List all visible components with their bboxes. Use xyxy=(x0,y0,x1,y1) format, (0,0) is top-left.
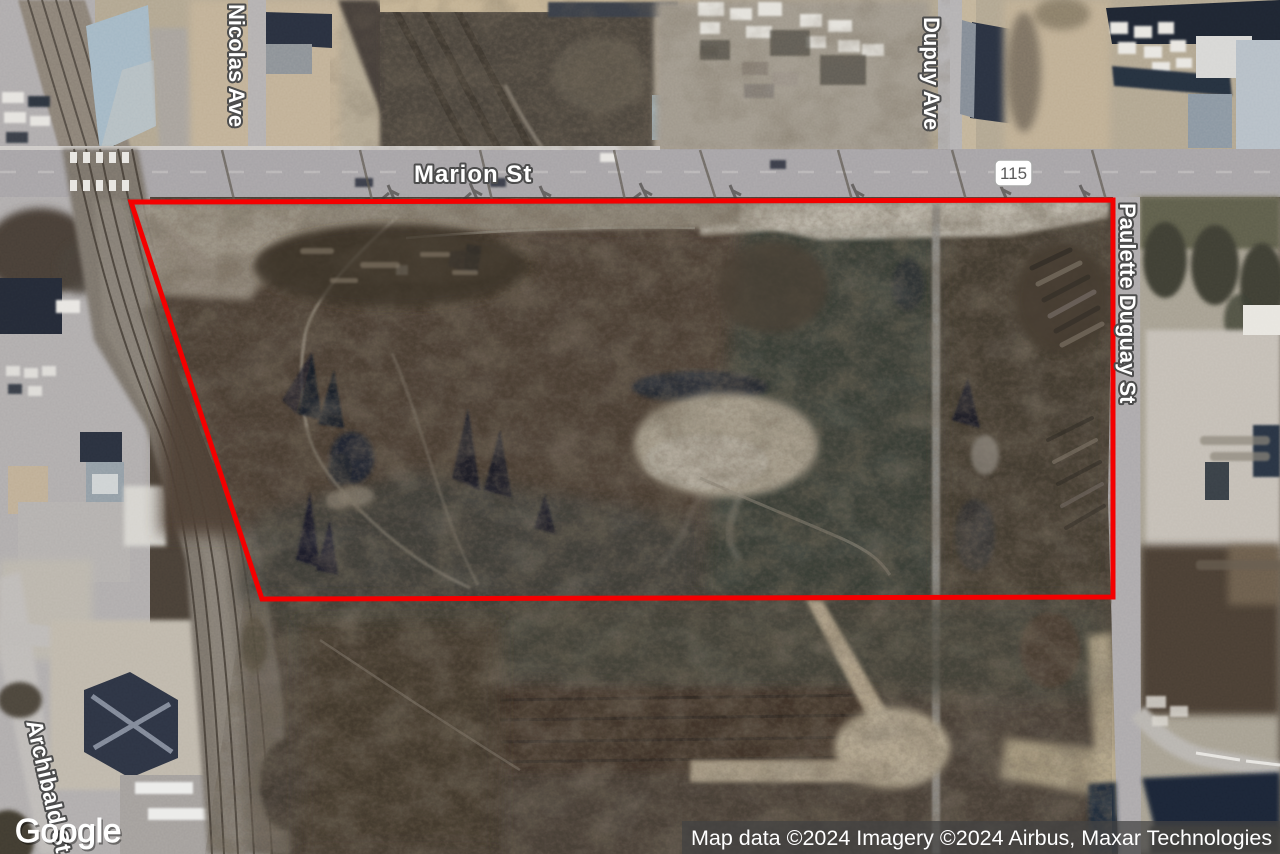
svg-text:Google: Google xyxy=(15,812,121,849)
svg-text:115: 115 xyxy=(1000,164,1027,183)
svg-text:Map data ©2024 Imagery ©2024 A: Map data ©2024 Imagery ©2024 Airbus, Max… xyxy=(691,826,1272,850)
svg-text:Nicolas Ave: Nicolas Ave xyxy=(224,4,249,127)
svg-text:Paulette Duguay St: Paulette Duguay St xyxy=(1115,203,1140,404)
svg-text:Dupuy Ave: Dupuy Ave xyxy=(919,17,944,130)
svg-text:Marion St: Marion St xyxy=(414,161,532,188)
